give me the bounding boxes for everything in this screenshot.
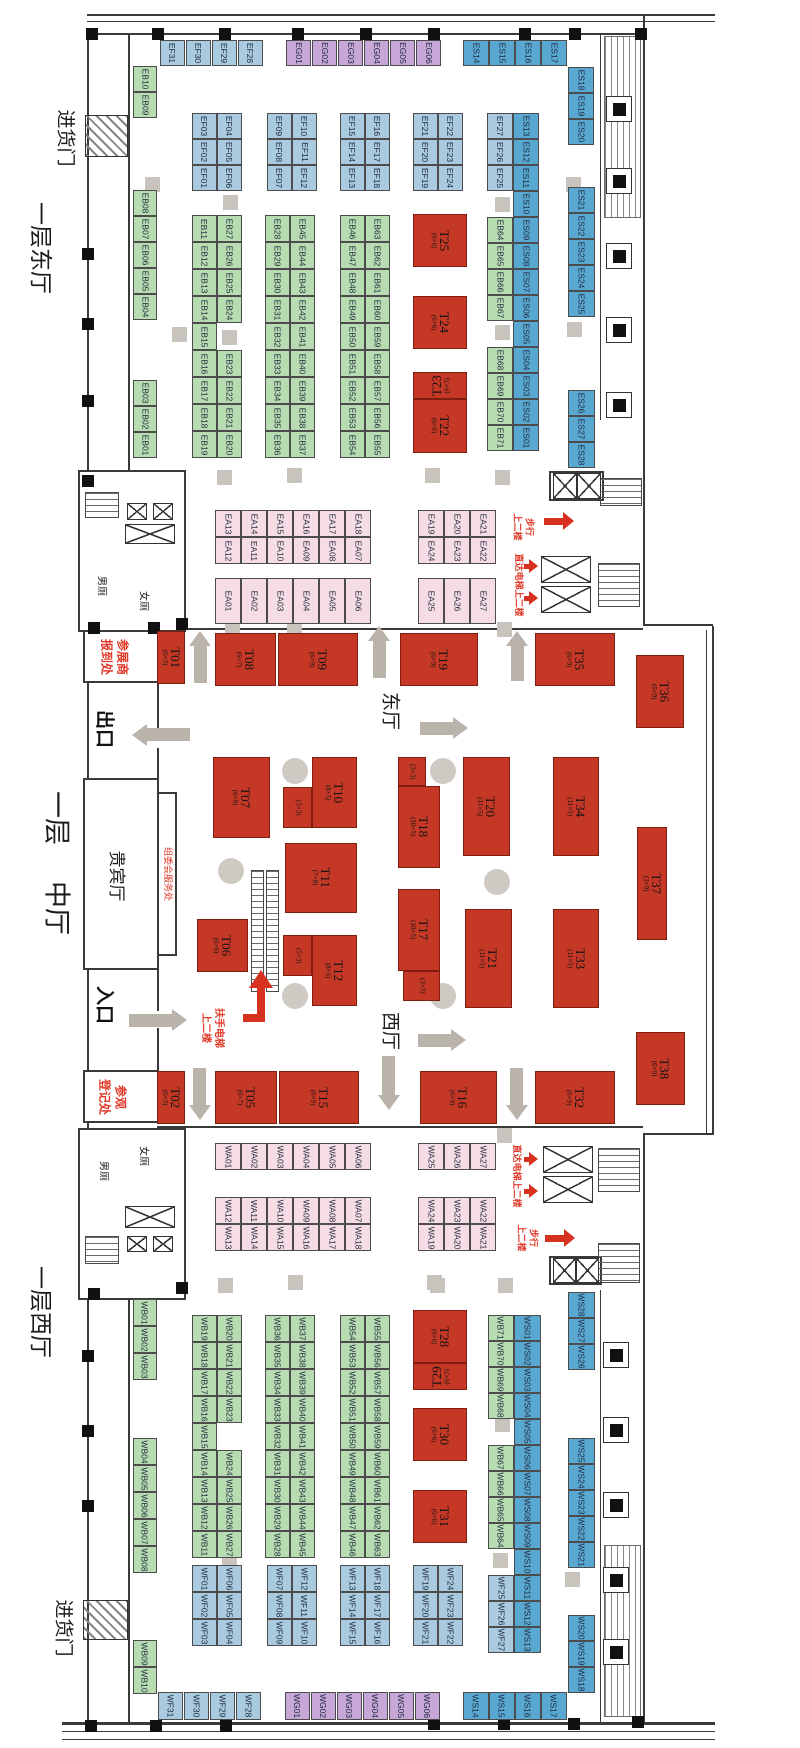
booth-label: EB32 [272,326,282,347]
utility-mark [497,1128,512,1143]
booth-WA08: WA08 [319,1197,345,1224]
booth-label: WB63 [373,1533,383,1556]
booth-T29: T29(6×3) [413,1363,467,1390]
booth-WF06: WF06 [217,1565,242,1592]
wall-segment [62,1739,715,1740]
booth-label: WB46 [348,1533,358,1556]
utility-mark [498,1278,513,1293]
booth-WF16: WF16 [365,1619,390,1646]
booth-label: WA02 [249,1145,259,1168]
bent-arrow-head [249,970,273,988]
booth-WB60: WB60 [365,1450,390,1477]
booth-ES03: ES03 [513,373,539,399]
booth-WG05: WG05 [389,1692,414,1720]
booth-EB22: EB22 [217,377,242,404]
booth-label: WB01 [140,1301,150,1324]
booth-EA26: EA26 [444,578,470,624]
booth-WA23: WA23 [444,1197,470,1224]
booth-EB47: EB47 [340,242,365,269]
booth-label: WS05 [523,1420,533,1443]
booth-label: EF31 [167,43,177,63]
pillar-box [603,1417,629,1443]
booth-label: WA18 [353,1226,363,1249]
flow-arrow [506,631,528,681]
booth-label: WS20 [577,1616,587,1639]
booth-EB13: EB13 [192,269,217,296]
booth-WA04: WA04 [293,1143,319,1170]
booth-T07: T07(6×9) [213,757,270,838]
booth-EB33: EB33 [265,350,290,377]
booth-WF27: WF27 [488,1627,514,1653]
stairs-hatch [598,563,640,607]
booth-label: WB65 [496,1498,506,1521]
booth-label: WB55 [373,1317,383,1340]
booth-EF02: EF02 [192,139,217,165]
wall-segment [643,1133,713,1135]
booth-label: WG06 [423,1694,433,1718]
booth-WS25: WS25 [568,1438,595,1464]
booth-WB42: WB42 [290,1450,315,1477]
booth-ES10: ES10 [513,191,539,217]
booth-label: EB04 [140,297,150,318]
booth-EB51: EB51 [340,350,365,377]
booth-WF04: WF04 [217,1619,242,1646]
booth-label: T32(6×9) [564,1087,585,1108]
booth-label: EB17 [199,380,209,401]
booth-label: EA25 [426,591,436,612]
booth-label: EF12 [299,168,309,188]
column-pillar [219,28,231,40]
booth-label: EA13 [223,513,233,534]
booth-EB01: EB01 [133,432,157,458]
booth-ES07: ES07 [513,269,539,295]
utility-mark [288,1275,303,1290]
booth-EF04: EF04 [217,113,242,139]
booth-label: EF18 [372,168,382,188]
booth-ES06: ES06 [513,295,539,321]
booth-T31: T31(6×6) [413,1490,467,1543]
booth-EF14: EF14 [340,139,365,165]
booth-label: T01(6×3) [160,647,181,668]
booth-WS01: WS01 [514,1315,541,1341]
booth-ES15: ES15 [489,40,515,66]
booth-WA11: WA11 [241,1197,267,1224]
booth-EB48: EB48 [340,269,365,296]
column-pillar [82,1500,94,1512]
booth-EB27: EB27 [217,215,242,242]
booth-label: WB43 [298,1479,308,1502]
booth-label: T36(6×9) [649,681,670,702]
booth-label: WB14 [200,1452,210,1475]
booth-EB59: EB59 [365,323,390,350]
booth-label: EB66 [495,272,505,293]
text-label: 贵宾厅 [105,851,127,902]
booth-T05: T05(6×7) [215,1071,277,1124]
booth-WA21: WA21 [470,1224,496,1251]
booth-label: T23(6×3) [429,375,450,396]
booth-EB37: EB37 [290,431,315,458]
booth-label: EB27 [224,218,234,239]
booth-WB20: WB20 [217,1315,242,1342]
booth-WS28: WS28 [568,1292,595,1318]
booth-EB26: EB26 [217,242,242,269]
booth-label: WA15 [275,1226,285,1249]
booth-label: WB29 [273,1506,283,1529]
booth-label: EA09 [301,540,311,561]
booth-label: WS15 [497,1694,507,1717]
booth-label: EB34 [272,380,282,401]
booth-WA02: WA02 [241,1143,267,1170]
elevator-box [125,524,175,544]
booth-label: EB57 [372,380,382,401]
booth-EB69: EB69 [487,373,513,399]
booth-T10: T10(8×5) [312,757,357,828]
booth-label: EB44 [297,245,307,266]
booth-label: WG05 [397,1694,407,1718]
booth-label: (5×3) [294,948,302,964]
booth-EB20: EB20 [217,431,242,458]
booth-label: WF28 [243,1695,253,1718]
booth-label: EA08 [327,540,337,561]
booth-WA15: WA15 [267,1224,293,1251]
booth-label: T24(6×6) [429,312,450,333]
booth-label: EG01 [294,42,304,64]
booth-WB57: WB57 [365,1369,390,1396]
booth-EA20: EA20 [444,510,470,537]
booth-WS17: WS17 [541,1692,567,1720]
booth-label: WB70 [496,1342,506,1365]
booth-label: WS09 [523,1524,533,1547]
booth-label: T28(6×6) [429,1326,450,1347]
booth-WB66: WB66 [488,1471,514,1497]
booth-WA09: WA09 [293,1197,319,1224]
booth-label: WA10 [275,1199,285,1222]
booth-label: EB42 [297,299,307,320]
text-label: 女厕 [137,591,150,611]
booth-label: EF16 [372,116,382,136]
booth-label: EB03 [140,383,150,404]
booth-label: WG02 [319,1694,329,1718]
flow-arrow [418,1029,466,1051]
booth-label: EB07 [140,219,150,240]
booth-WB45: WB45 [290,1531,315,1558]
booth-EF28: EF28 [238,40,263,66]
booth-label: EG03 [346,42,356,64]
booth-label: ES25 [576,294,586,315]
booth-label: EF29 [219,43,229,63]
text-label: 参观 登记处 [96,1079,127,1115]
elevator-box [125,1206,175,1228]
pillar-box [606,243,632,269]
booth-WF03: WF03 [192,1619,217,1646]
booth-label: WA23 [452,1199,462,1222]
booth-WF12: WF12 [292,1565,317,1592]
wayfinding-arrow [524,559,538,573]
booth-ES04: ES04 [513,347,539,373]
booth-label: WS01 [523,1316,533,1339]
booth-label: ES19 [576,96,586,117]
booth-WB27: WB27 [217,1531,242,1558]
booth-WB10: WB10 [133,1667,157,1694]
booth-label: WA19 [426,1226,436,1249]
booth-EF26: EF26 [487,139,513,165]
booth-WB14: WB14 [192,1450,217,1477]
booth-label: (3×3) [408,764,416,780]
booth-T34: T34(11×5) [553,757,599,856]
wall-segment [87,21,715,22]
booth-T12: T12(8×5) [312,935,357,1006]
booth-WF07: WF07 [267,1565,292,1592]
booth-label: ES07 [521,272,531,293]
booth-WF26: WF26 [488,1601,514,1627]
booth-label: WA26 [452,1145,462,1168]
booth-label: WB25 [225,1479,235,1502]
pillar-box [603,1492,629,1518]
text-label: 一层西厅 [25,1266,55,1358]
booth-label: WF15 [347,1621,357,1644]
booth-label: WF31 [165,1695,175,1718]
wall-segment [600,35,601,420]
booth-EB66: EB66 [487,269,513,295]
booth-T16: T16(6×9) [420,1071,497,1124]
booth-WS23: WS23 [568,1490,595,1516]
booth-label: ES06 [521,298,531,319]
booth-WA10: WA10 [267,1197,293,1224]
booth-T25: T25(6×6) [413,214,467,267]
booth-EF03: EF03 [192,113,217,139]
booth-WS14: WS14 [463,1692,489,1720]
booth-WB64: WB64 [488,1523,514,1549]
booth-label: WB58 [373,1398,383,1421]
wall-segment [706,630,707,1135]
booth-WS10: WS10 [514,1549,541,1575]
booth-label: WF18 [372,1567,382,1590]
booth-label: EB30 [272,272,282,293]
booth-WG06: WG06 [415,1692,440,1720]
booth-label: EB55 [372,434,382,455]
booth-T35: T35(6×9) [535,633,615,686]
booth-label: WB35 [273,1344,283,1367]
wall-segment [600,1290,601,1722]
booth-WS11: WS11 [514,1575,541,1601]
booth-EB09: EB09 [133,92,157,118]
booth-WF31: WF31 [158,1692,183,1720]
booth-label: EF27 [495,116,505,136]
booth-EA12: EA12 [215,537,241,564]
column-pillar [635,28,647,40]
flow-arrow [129,1009,187,1031]
booth-EB63: EB63 [365,215,390,242]
booth-WB21: WB21 [217,1342,242,1369]
booth-WB05: WB05 [133,1465,157,1492]
booth-label: EB09 [140,95,150,116]
booth-WF15: WF15 [340,1619,365,1646]
text-label: 女厕 [137,1146,150,1166]
booth-EF12: EF12 [292,165,317,191]
booth-label: EB58 [372,353,382,374]
booth-label: EB33 [272,353,282,374]
booth-sub: (5×3) [283,787,312,828]
booth-label: EA12 [223,540,233,561]
booth-label: ES05 [521,324,531,345]
booth-EF16: EF16 [365,113,390,139]
booth-label: WG04 [371,1694,381,1718]
column-pillar [428,28,440,40]
booth-WB53: WB53 [340,1342,365,1369]
booth-WA12: WA12 [215,1197,241,1224]
booth-EF19: EF19 [413,165,438,191]
utility-mark [223,195,238,210]
booth-WB11: WB11 [192,1531,217,1558]
booth-WS05: WS05 [514,1419,541,1445]
booth-WB40: WB40 [290,1396,315,1423]
booth-label: WB47 [348,1506,358,1529]
booth-EG04: EG04 [364,40,389,66]
booth-WB24: WB24 [217,1450,242,1477]
booth-EF25: EF25 [487,165,513,191]
stairs-hatch [598,1148,640,1192]
booth-WA13: WA13 [215,1224,241,1251]
utility-mark [495,1417,510,1432]
booth-label: ES28 [576,445,586,466]
text-label: 男厕 [97,1161,110,1181]
utility-mark [495,470,510,485]
booth-WF11: WF11 [292,1592,317,1619]
booth-label: WF04 [224,1621,234,1644]
booth-WG03: WG03 [337,1692,362,1720]
elevator-box [543,1176,593,1203]
booth-label: WB05 [140,1467,150,1490]
booth-label: WA16 [301,1226,311,1249]
booth-EF07: EF07 [267,165,292,191]
booth-label: ES22 [576,216,586,237]
booth-EB06: EB06 [133,242,157,268]
booth-label: WB36 [273,1317,283,1340]
booth-EB49: EB49 [340,296,365,323]
booth-label: EA21 [478,513,488,534]
booth-label: EA23 [452,540,462,561]
booth-label: T33(11×5) [565,948,586,969]
booth-label: ES13 [521,116,531,137]
booth-EF10: EF10 [292,113,317,139]
booth-ES11: ES11 [513,165,539,191]
booth-label: ES01 [521,428,531,449]
column-pillar [86,28,98,40]
booth-label: EA22 [478,540,488,561]
booth-WB56: WB56 [365,1342,390,1369]
column-pillar [632,1716,644,1728]
booth-label: T21(11×5) [478,948,499,969]
booth-label: WS23 [577,1491,587,1514]
booth-label: EA24 [426,540,436,561]
wall-segment [643,14,645,626]
booth-WF17: WF17 [365,1592,390,1619]
booth-label: EF03 [199,116,209,136]
booth-label: T07(6×9) [231,787,252,808]
booth-EB35: EB35 [265,404,290,431]
booth-WA22: WA22 [470,1197,496,1224]
booth-label: WF09 [274,1621,284,1644]
booth-label: EB50 [347,326,357,347]
booth-EA09: EA09 [293,537,319,564]
booth-T18: T18(10×5) [398,786,440,868]
booth-WF22: WF22 [438,1619,463,1646]
booth-label: WS07 [523,1472,533,1495]
booth-label: EB43 [297,272,307,293]
booth-label: WB03 [140,1355,150,1378]
booth-EF24: EF24 [438,165,463,191]
booth-label: T20(11×5) [476,796,497,817]
booth-WS03: WS03 [514,1367,541,1393]
column-pillar [82,318,94,330]
booth-label: WB13 [200,1479,210,1502]
booth-label: EB12 [199,245,209,266]
booth-label: WB31 [273,1452,283,1475]
booth-WF13: WF13 [340,1565,365,1592]
booth-label: EB19 [199,434,209,455]
booth-EB68: EB68 [487,347,513,373]
booth-WB67: WB67 [488,1445,514,1471]
booth-label: WS18 [577,1668,587,1691]
booth-label: WB69 [496,1368,506,1391]
booth-WB16: WB16 [192,1396,217,1423]
booth-label: EB41 [297,326,307,347]
booth-label: WB23 [225,1398,235,1421]
booth-EB52: EB52 [340,377,365,404]
booth-label: WB34 [273,1371,283,1394]
booth-label: WF26 [496,1603,506,1626]
booth-EB60: EB60 [365,296,390,323]
booth-EB18: EB18 [192,404,217,431]
booth-label: WB66 [496,1472,506,1495]
booth-T09: T09(6×9) [278,633,358,686]
booth-WB37: WB37 [290,1315,315,1342]
wall-segment [643,1133,645,1724]
booth-label: EB51 [347,353,357,374]
booth-label: WS08 [523,1498,533,1521]
booth-label: EB62 [372,245,382,266]
booth-EB15: EB15 [192,323,217,350]
booth-WB13: WB13 [192,1477,217,1504]
booth-WB07: WB07 [133,1519,157,1546]
booth-EB41: EB41 [290,323,315,350]
booth-label: WF16 [372,1621,382,1644]
booth-EF06: EF06 [217,165,242,191]
booth-WB51: WB51 [340,1396,365,1423]
utility-mark [565,1572,580,1587]
booth-T33: T33(11×5) [553,909,599,1008]
booth-label: WB50 [348,1425,358,1448]
booth-WS24: WS24 [568,1464,595,1490]
booth-label: EB08 [140,193,150,214]
booth-WB49: WB49 [340,1450,365,1477]
booth-label: T15(6×9) [308,1087,329,1108]
text-label: 入口 [91,986,116,1024]
booth-label: EB24 [224,299,234,320]
stairs-hatch [598,1243,640,1283]
booth-EF01: EF01 [192,165,217,191]
booth-label: (3×3) [418,978,426,994]
booth-label: WS02 [523,1342,533,1365]
booth-EA07: EA07 [345,537,371,564]
booth-WB35: WB35 [265,1342,290,1369]
booth-label: WA14 [249,1226,259,1249]
wall-segment [157,683,159,728]
booth-EA08: EA08 [319,537,345,564]
booth-label: WA24 [426,1199,436,1222]
booth-WB59: WB59 [365,1423,390,1450]
flow-arrow [506,1068,528,1120]
